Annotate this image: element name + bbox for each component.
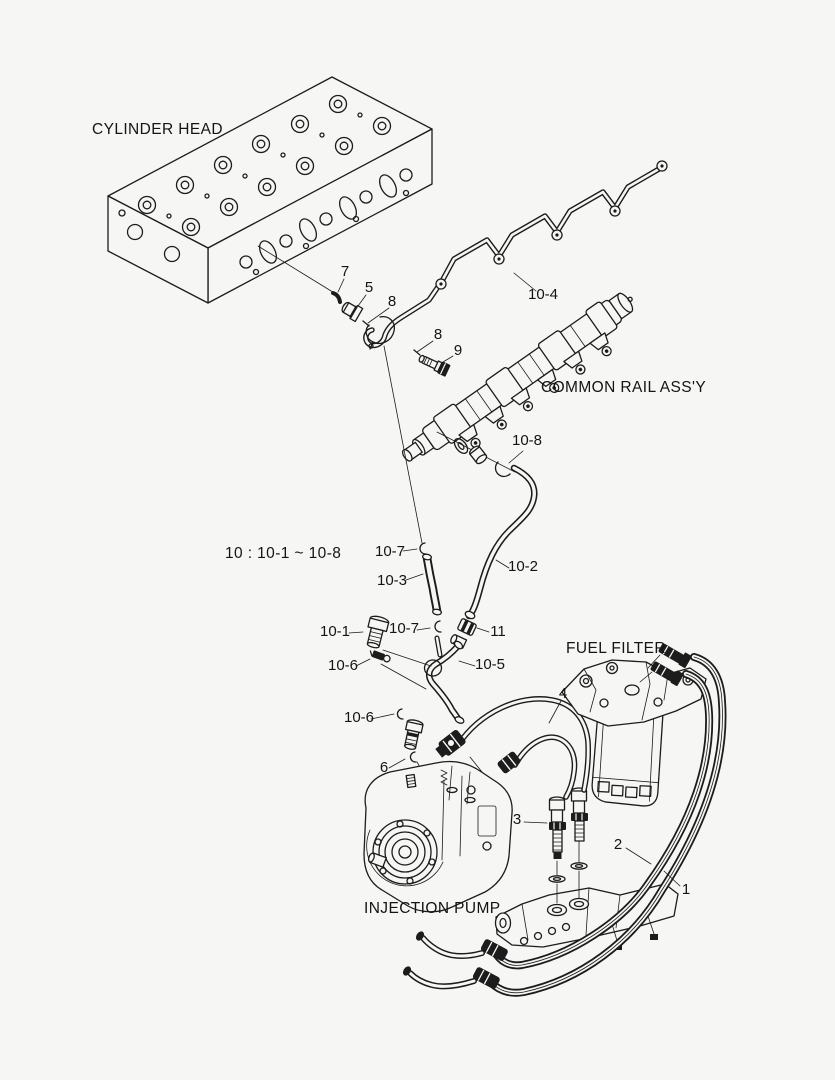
part-label-11: 11 (490, 623, 506, 640)
banjo-fitting (433, 729, 466, 760)
fuel-piping-diagram: CYLINDER HEAD COMMON RAIL ASS'Y FUEL FIL… (0, 0, 835, 1080)
hose-10-5 (425, 640, 465, 725)
part-label-10-5: 10-5 (475, 656, 505, 673)
label-cylinder-head: CYLINDER HEAD (92, 121, 223, 138)
clip-10-7-lower (435, 621, 441, 632)
fitting-3-right (571, 788, 588, 898)
part-label-10-7b: 10-7 (389, 620, 419, 637)
label-fuel-filter: FUEL FILTER (566, 640, 666, 657)
label-injection-pump: INJECTION PUMP (364, 900, 501, 917)
clip-6 (410, 752, 416, 762)
part-label-10-3: 10-3 (377, 572, 407, 589)
part-label-10-8: 10-8 (512, 432, 542, 449)
part-label-8b: 8 (434, 326, 442, 343)
plug-part-5 (340, 300, 363, 322)
part-label-10-1: 10-1 (320, 623, 350, 640)
part-label-7: 7 (341, 263, 349, 280)
tube-stub-tee (437, 638, 440, 655)
filter-canister (591, 710, 663, 806)
pin-part-7 (333, 293, 340, 302)
bolt-part-9 (417, 352, 451, 377)
fitting-3-left (549, 797, 566, 903)
hose-10-2 (464, 468, 534, 620)
filter-head (562, 660, 706, 726)
parts-diagram-page: CYLINDER HEAD COMMON RAIL ASS'Y FUEL FIL… (0, 0, 835, 1080)
part-label-10-6b: 10-6 (344, 709, 374, 726)
clip-10-8 (496, 462, 510, 476)
elbow-fitting (496, 751, 521, 775)
part-label-4: 4 (559, 685, 567, 702)
part-label-9: 9 (454, 342, 462, 359)
part-label-10-4: 10-4 (528, 286, 558, 303)
part-label-10-7a: 10-7 (375, 543, 405, 560)
joint-bolt-body (402, 719, 424, 751)
injection-pump-drawing (364, 761, 512, 911)
clip-10-6-lower (397, 709, 403, 719)
bolt-10-1 (363, 615, 389, 650)
tube-10-3 (422, 554, 442, 616)
label-group-note: 10 : 10-1 ~ 10-8 (225, 545, 341, 562)
part-label-5: 5 (365, 279, 373, 296)
clip-10-7-upper (420, 543, 426, 554)
connector-11 (457, 618, 477, 636)
part-label-10-6a: 10-6 (328, 657, 358, 674)
part-label-3: 3 (513, 811, 521, 828)
label-common-rail: COMMON RAIL ASS'Y (541, 379, 706, 396)
part-label-10-2: 10-2 (508, 558, 538, 575)
cylinder-head-drawing (108, 77, 432, 303)
part-label-1: 1 (682, 881, 690, 898)
part-label-2: 2 (614, 836, 622, 853)
part-label-6: 6 (380, 759, 388, 776)
part-label-8a: 8 (388, 293, 396, 310)
